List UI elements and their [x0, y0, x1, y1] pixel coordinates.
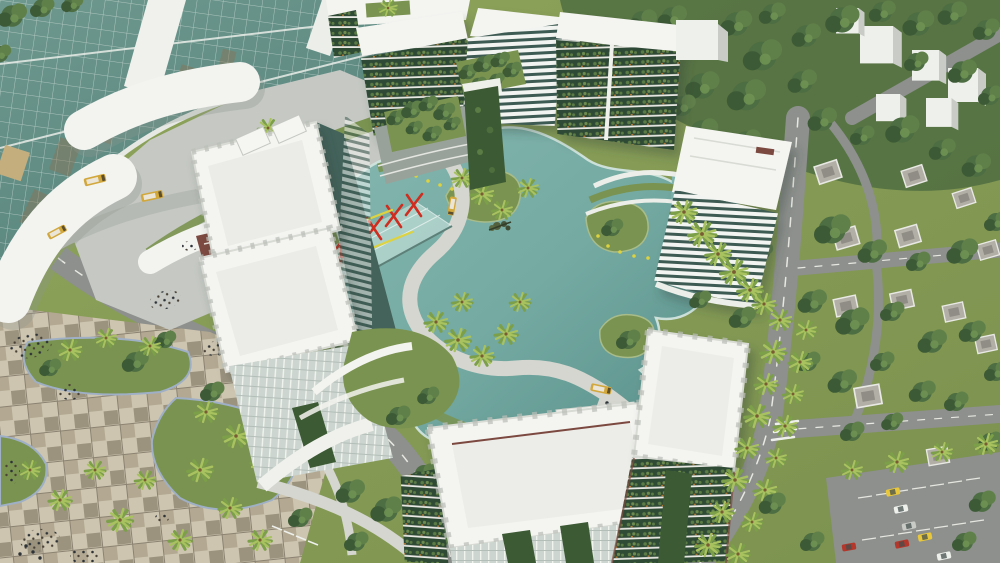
eco-slab	[328, 10, 362, 58]
eco-tower-b	[554, 12, 688, 154]
massing-cube	[860, 26, 902, 68]
villa	[854, 384, 882, 408]
massing-block	[676, 20, 728, 62]
villa	[942, 302, 966, 322]
aerial-render: Aerial 3D architectural rendering of a m…	[0, 0, 1000, 563]
massing-cube	[926, 98, 958, 130]
render-stage: Aerial 3D architectural rendering of a m…	[0, 0, 1000, 563]
